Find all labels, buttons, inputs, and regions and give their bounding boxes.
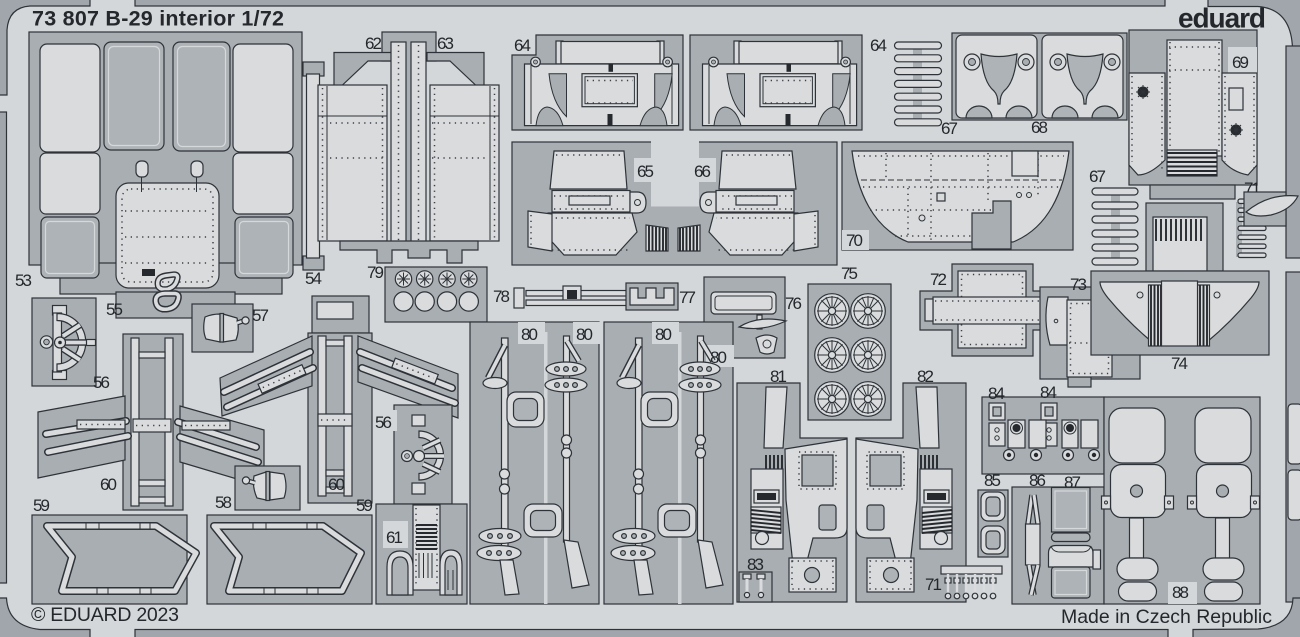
svg-text:73 807 B-29 interior 1/72: 73 807 B-29 interior 1/72 xyxy=(32,7,284,31)
svg-text:eduard: eduard xyxy=(1178,3,1266,34)
svg-text:66: 66 xyxy=(694,162,711,181)
svg-text:77: 77 xyxy=(679,288,696,307)
svg-text:80: 80 xyxy=(576,325,593,344)
svg-text:55: 55 xyxy=(106,300,123,319)
svg-text:68: 68 xyxy=(1031,118,1048,137)
svg-text:64: 64 xyxy=(870,36,887,55)
svg-text:75: 75 xyxy=(841,264,858,283)
svg-text:80: 80 xyxy=(710,348,727,367)
svg-text:67: 67 xyxy=(1089,167,1106,186)
svg-text:54: 54 xyxy=(305,269,322,288)
svg-text:76: 76 xyxy=(785,294,802,313)
svg-text:73: 73 xyxy=(1070,275,1087,294)
svg-text:62: 62 xyxy=(365,34,382,53)
svg-text:57: 57 xyxy=(252,306,269,325)
svg-text:60: 60 xyxy=(328,475,345,494)
svg-text:88: 88 xyxy=(1172,583,1189,602)
svg-text:59: 59 xyxy=(356,496,373,515)
svg-text:84: 84 xyxy=(1040,383,1057,402)
svg-text:58: 58 xyxy=(215,493,232,512)
svg-text:70: 70 xyxy=(846,231,863,250)
svg-text:67: 67 xyxy=(941,119,958,138)
svg-text:84: 84 xyxy=(988,384,1005,403)
svg-text:80: 80 xyxy=(521,325,538,344)
svg-text:71: 71 xyxy=(925,575,942,594)
svg-text:82: 82 xyxy=(917,367,934,386)
svg-text:Made in Czech Republic: Made in Czech Republic xyxy=(1061,606,1272,628)
svg-text:78: 78 xyxy=(493,287,510,306)
svg-text:© EDUARD 2023: © EDUARD 2023 xyxy=(31,604,179,626)
svg-text:79: 79 xyxy=(367,263,384,282)
svg-text:83: 83 xyxy=(747,555,764,574)
svg-text:72: 72 xyxy=(930,270,947,289)
svg-text:61: 61 xyxy=(386,528,403,547)
svg-text:64: 64 xyxy=(514,36,531,55)
svg-text:59: 59 xyxy=(33,496,50,515)
svg-text:69: 69 xyxy=(1232,53,1249,72)
svg-text:60: 60 xyxy=(100,475,117,494)
svg-text:85: 85 xyxy=(984,471,1001,490)
svg-text:53: 53 xyxy=(15,271,32,290)
svg-text:80: 80 xyxy=(655,325,672,344)
svg-text:65: 65 xyxy=(637,162,654,181)
svg-text:56: 56 xyxy=(375,413,392,432)
svg-text:74: 74 xyxy=(1171,354,1188,373)
svg-text:63: 63 xyxy=(437,34,454,53)
svg-text:81: 81 xyxy=(770,367,787,386)
svg-text:56: 56 xyxy=(93,373,110,392)
